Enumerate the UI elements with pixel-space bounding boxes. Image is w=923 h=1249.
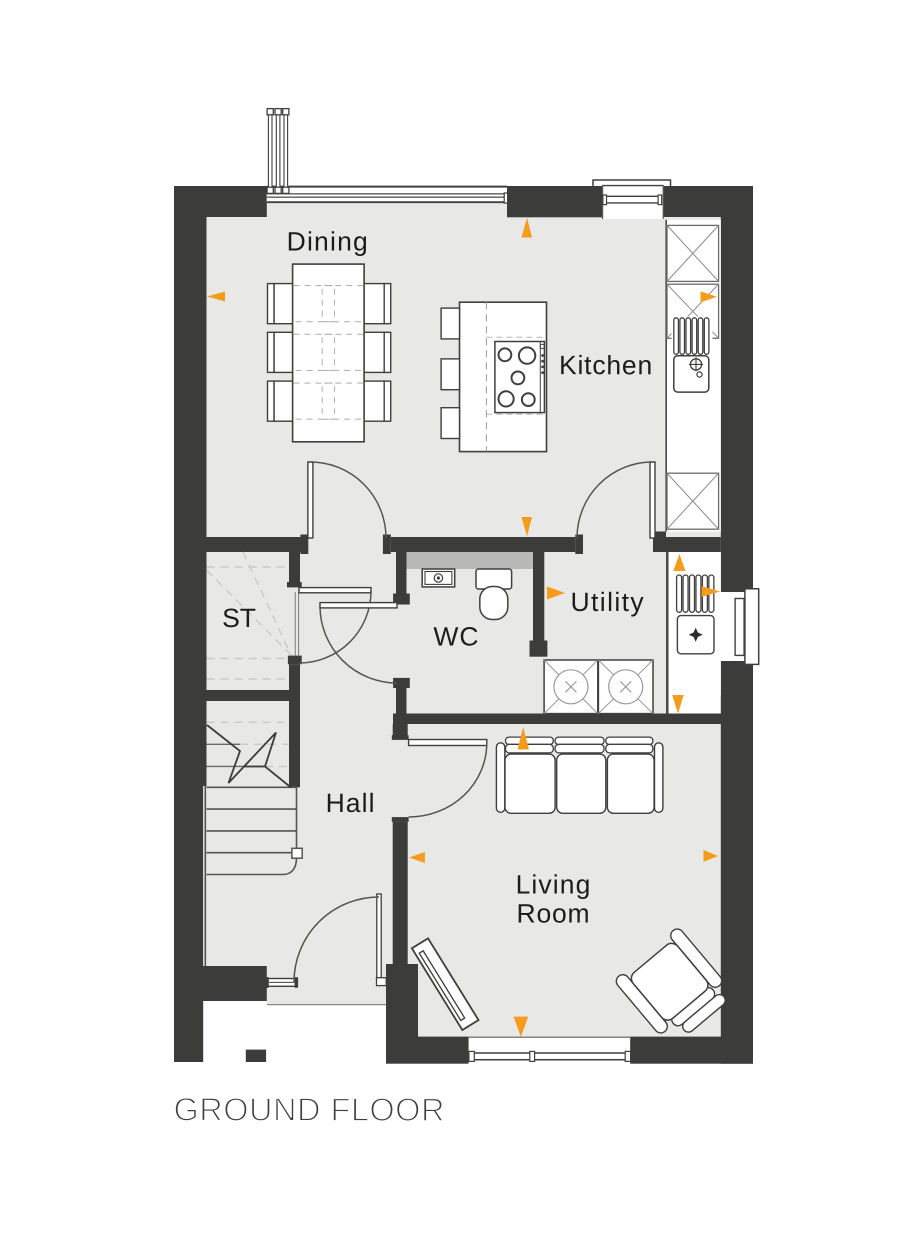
svg-text:Living: Living: [516, 869, 592, 899]
svg-text:ST: ST: [222, 603, 256, 633]
svg-text:Dining: Dining: [287, 226, 369, 256]
svg-text:Room: Room: [517, 898, 591, 928]
svg-text:GROUND FLOOR: GROUND FLOOR: [173, 1092, 444, 1128]
svg-text:Utility: Utility: [571, 587, 646, 617]
svg-text:Kitchen: Kitchen: [559, 350, 653, 380]
svg-text:Hall: Hall: [326, 788, 376, 818]
svg-text:WC: WC: [433, 621, 479, 651]
